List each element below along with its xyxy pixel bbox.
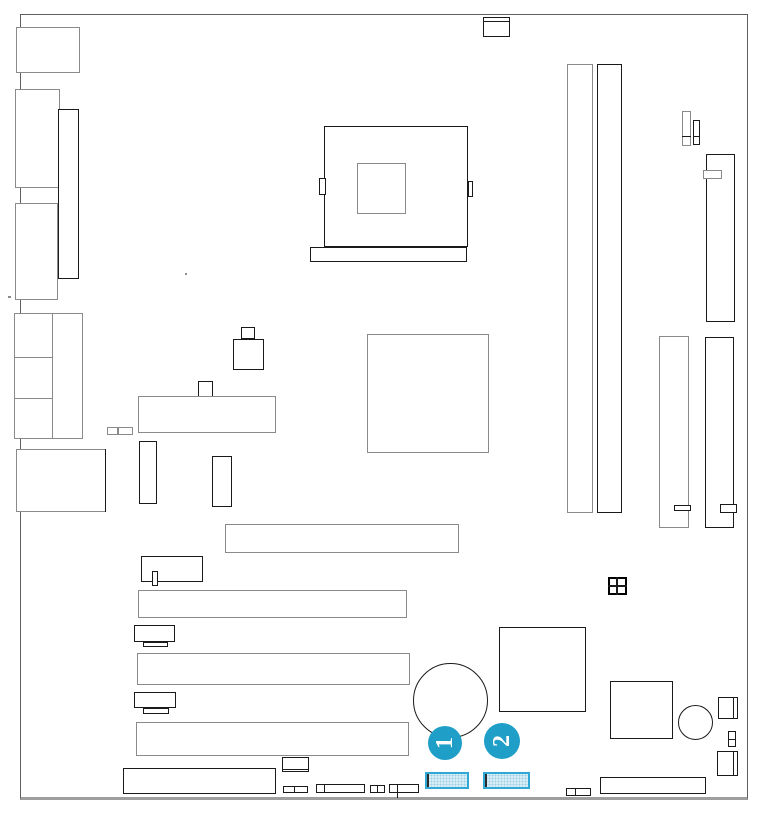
ide-connector-3-key (720, 504, 737, 513)
header-below-pci3-div (282, 769, 309, 770)
stray-mark-a (185, 273, 187, 275)
vrm-a (139, 441, 157, 504)
highlighted-connector-2[interactable] (483, 772, 530, 789)
dimm-slot-2 (597, 64, 622, 513)
header-bracket-c-key (143, 708, 169, 714)
fan-header-top (483, 17, 510, 37)
atx-power-connector (138, 396, 276, 433)
connector-right-1 (718, 697, 738, 719)
callout-badge-2[interactable]: 2 (484, 723, 520, 759)
highlighted-connector-1[interactable] (425, 772, 469, 789)
connector-right-3-div (733, 751, 734, 776)
cpu-lever-right (468, 181, 473, 197)
cpu-lever-left (319, 178, 326, 195)
bios-chip (610, 681, 673, 739)
bottom-header-3-div (377, 785, 378, 793)
fuse-b (118, 427, 133, 435)
ide-connector-1 (706, 154, 735, 322)
callout-label: 1 (433, 737, 457, 749)
io-port-parallel (58, 109, 79, 279)
front-panel-header (123, 768, 276, 794)
io-port-keyboard (16, 27, 80, 73)
io-audio-block (14, 313, 83, 439)
header-small-a (682, 111, 691, 146)
header-bracket-a-key (152, 571, 158, 586)
cpu-core (357, 163, 406, 214)
bottom-header-4 (389, 784, 419, 793)
bottom-header-4-div (397, 784, 398, 798)
buzzer (678, 705, 713, 740)
header-small-a-div (682, 136, 691, 137)
northbridge-chip (367, 334, 489, 453)
bottom-header-1-div (294, 786, 295, 793)
dimm-slot-1 (567, 64, 593, 513)
connector-bottom-right-small-div (575, 788, 576, 796)
bottom-header-2-div (324, 784, 325, 793)
header-bracket-b (134, 625, 175, 642)
motherboard-diagram: 12 (0, 0, 769, 820)
callout-label: 2 (490, 735, 514, 747)
io-audio-line-1 (14, 357, 52, 358)
component-cap-small (241, 327, 255, 339)
connector-bottom-right-small (566, 788, 591, 796)
io-audio-divider (52, 313, 53, 439)
ide-connector-1-key (703, 170, 722, 179)
component-block (233, 339, 264, 370)
fuse-a (107, 427, 118, 435)
header-small-b (693, 120, 700, 145)
connector-right-1-div (733, 697, 734, 719)
pci-slot-3 (136, 722, 409, 756)
io-port-lan-edge (105, 449, 106, 512)
connector-right-3 (717, 751, 738, 776)
pci-slot-2 (137, 653, 410, 685)
ide-connector-3 (705, 337, 734, 528)
connector-right-2-div (728, 739, 736, 740)
io-audio-line-2 (14, 398, 52, 399)
header-small-b-div (693, 136, 700, 137)
callout-badge-1[interactable]: 1 (428, 726, 462, 760)
pci-slot-1 (138, 590, 407, 618)
bottom-header-1 (283, 786, 308, 793)
jumper-block-hdiv (608, 585, 627, 587)
vrm-b (212, 456, 232, 507)
stray-mark-b (8, 296, 11, 298)
ide-connector-2-key (674, 505, 691, 511)
header-bracket-c (134, 692, 176, 708)
io-port-vga (15, 203, 58, 300)
io-port-com (15, 89, 60, 188)
header-bracket-b-key (143, 642, 168, 647)
fan-header-top-line (483, 21, 510, 22)
header-bottom-right (600, 777, 706, 794)
agp-slot (225, 524, 459, 553)
cpu-retention-bar (310, 247, 467, 262)
southbridge-chip (499, 627, 586, 712)
ide-connector-2 (659, 336, 689, 528)
header-bracket-a (141, 556, 203, 582)
io-port-lan (16, 449, 106, 512)
